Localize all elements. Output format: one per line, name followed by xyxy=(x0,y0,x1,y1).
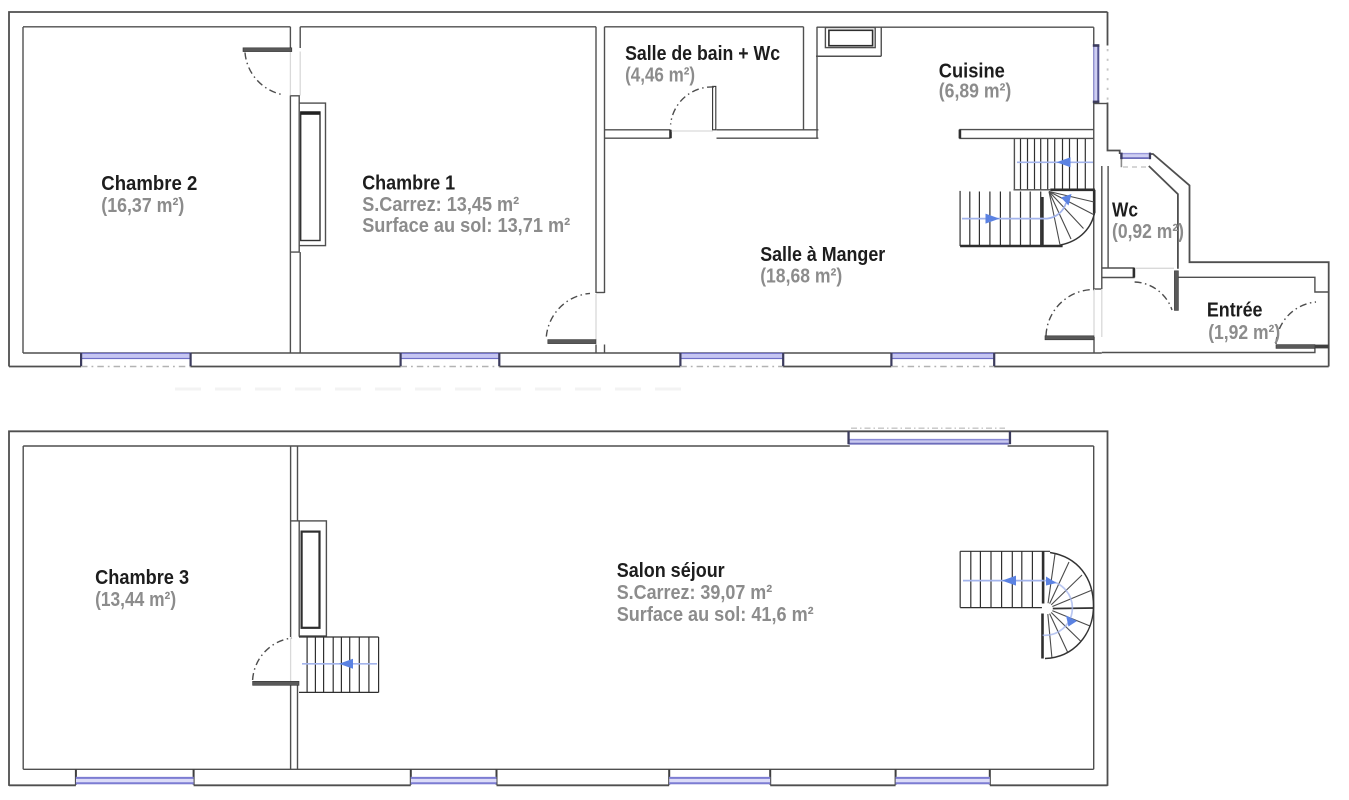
svg-text:Salle à Manger: Salle à Manger xyxy=(760,244,885,266)
svg-text:Entrée: Entrée xyxy=(1207,300,1263,322)
svg-text:(13,44 m²): (13,44 m²) xyxy=(95,589,176,611)
svg-text:Salon séjour: Salon séjour xyxy=(617,560,725,582)
svg-text:(4,46 m²): (4,46 m²) xyxy=(625,65,695,87)
svg-text:Cuisine: Cuisine xyxy=(939,61,1005,83)
svg-text:Chambre 2: Chambre 2 xyxy=(101,173,197,195)
svg-text:Chambre 3: Chambre 3 xyxy=(95,567,189,589)
svg-text:Wc: Wc xyxy=(1112,199,1138,221)
svg-text:Surface au sol: 41,6 m²: Surface au sol: 41,6 m² xyxy=(617,604,814,626)
svg-text:(16,37 m²): (16,37 m²) xyxy=(101,195,184,217)
svg-text:Surface au sol: 13,71 m²: Surface au sol: 13,71 m² xyxy=(362,215,570,237)
svg-text:(6,89 m²): (6,89 m²) xyxy=(939,81,1012,103)
svg-text:Salle de bain + Wc: Salle de bain + Wc xyxy=(625,43,780,65)
svg-text:Chambre 1: Chambre 1 xyxy=(362,173,455,195)
svg-text:(18,68 m²): (18,68 m²) xyxy=(760,265,842,287)
svg-text:(0,92 m²): (0,92 m²) xyxy=(1112,221,1184,243)
svg-text:S.Carrez: 13,45 m²: S.Carrez: 13,45 m² xyxy=(362,194,519,216)
svg-text:S.Carrez: 39,07 m²: S.Carrez: 39,07 m² xyxy=(617,582,773,604)
svg-text:(1,92 m²): (1,92 m²) xyxy=(1208,322,1280,344)
